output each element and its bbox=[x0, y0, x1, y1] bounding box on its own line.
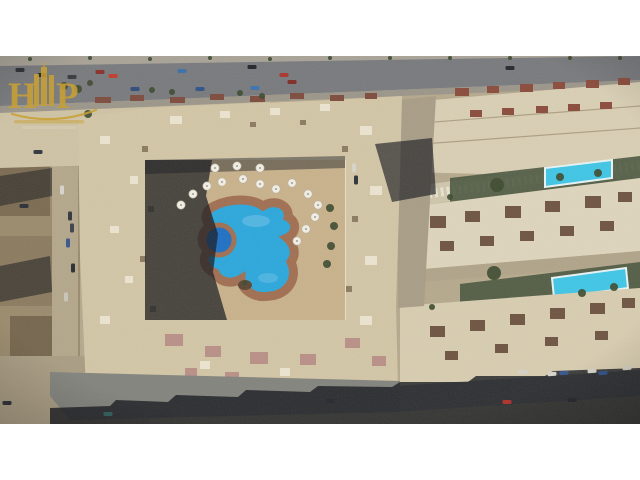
photo-vignette bbox=[0, 56, 640, 424]
aerial-photo: H P bbox=[0, 56, 640, 424]
photo-frame: H P bbox=[0, 0, 640, 480]
aerial-scene bbox=[0, 56, 640, 424]
